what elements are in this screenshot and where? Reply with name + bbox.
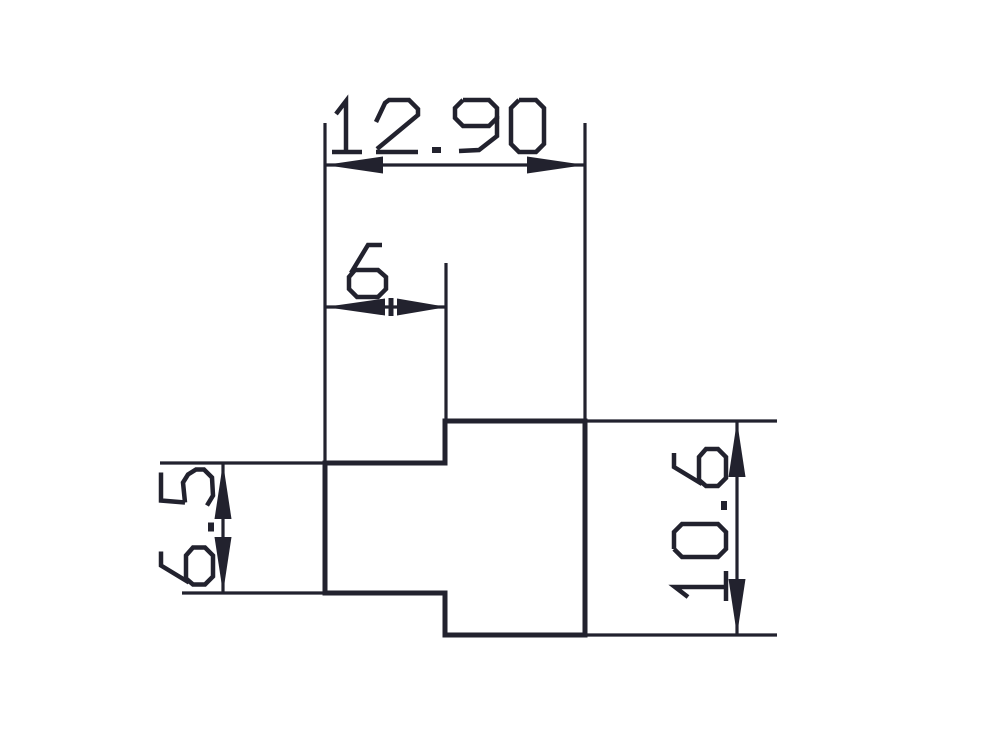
dimension-tab-width xyxy=(325,245,447,421)
drawing-page xyxy=(0,0,1000,750)
dimension-value-overall-width xyxy=(332,100,544,153)
dimension-value-tab-width xyxy=(349,245,386,297)
dimension-tab-height xyxy=(160,463,325,593)
dimension-overall-height xyxy=(585,421,777,635)
part-outline xyxy=(325,421,585,635)
dimension-value-overall-height xyxy=(674,449,727,601)
dimension-value-tab-height xyxy=(161,470,214,585)
dimension-overall-width xyxy=(325,100,585,463)
technical-drawing xyxy=(0,0,1000,750)
dimensions xyxy=(160,100,777,635)
